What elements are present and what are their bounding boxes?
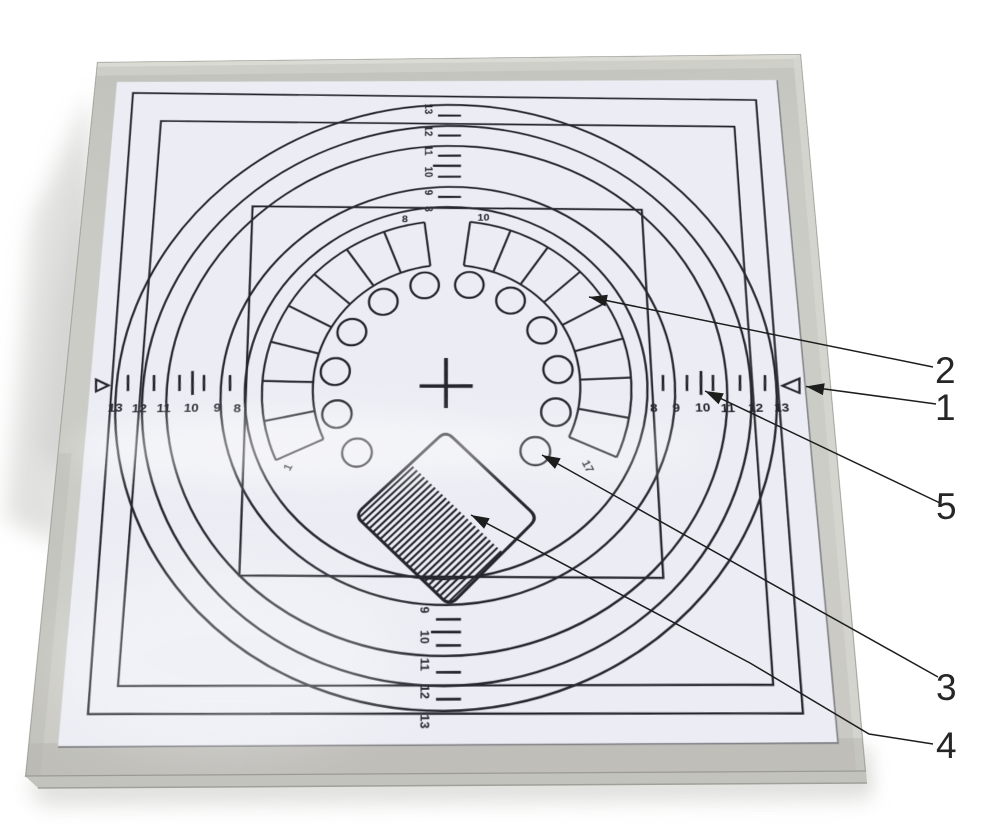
- svg-text:5: 5: [936, 486, 957, 527]
- svg-text:1: 1: [935, 387, 956, 428]
- svg-text:4: 4: [936, 725, 957, 766]
- svg-text:3: 3: [936, 667, 957, 708]
- svg-text:2: 2: [935, 350, 956, 391]
